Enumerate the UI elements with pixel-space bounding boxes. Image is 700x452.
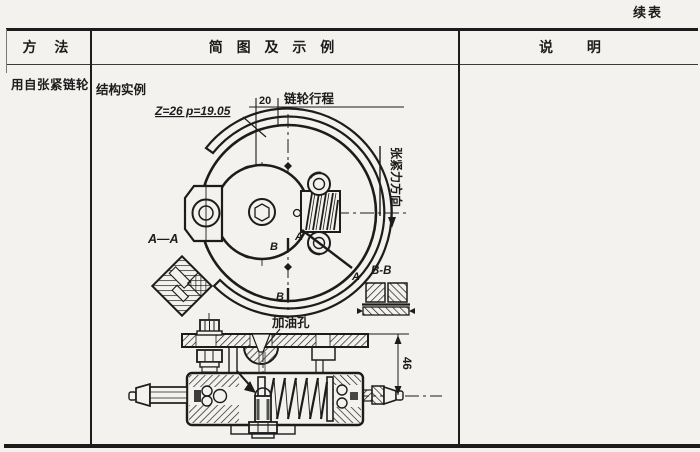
section-aa-title: A—A <box>147 232 179 246</box>
mounting-plate <box>182 334 368 347</box>
dim20-value: 20 <box>259 95 271 107</box>
section-a-a-view: A—A <box>147 232 212 316</box>
tension-direction-label: 张紧力方向 <box>389 147 404 207</box>
example-label: 结构实例 <box>96 82 146 97</box>
section-label-a2: A <box>351 271 360 283</box>
housing-right-block <box>333 375 361 423</box>
stroke-label: 链轮行程 <box>284 91 335 106</box>
oil-hole-label: 加油孔 <box>271 315 310 330</box>
section-bb-title: B-B <box>371 265 391 277</box>
plate-bolt-top-right <box>308 173 330 195</box>
scanned-handbook-page: 续表 方 法 简 图 及 示 例 说 明 用自张紧链轮 结构实例 Z=26 p=… <box>0 0 700 452</box>
schematic-drawing: 结构实例 Z=26 p=19.05 20 链轮行程 <box>0 0 700 452</box>
tension-arrow-head <box>388 217 396 228</box>
section-label-b2: B <box>276 291 284 303</box>
center-mark-top <box>284 162 292 170</box>
section-b-b-view: B-B <box>357 265 415 315</box>
section-label-b1: B <box>270 241 278 253</box>
section-label-a1: A <box>294 231 303 243</box>
sprocket-spec-label: Z=26 p=19.05 <box>154 104 231 118</box>
housing-left-block <box>189 375 239 423</box>
left-adjuster-bolt <box>129 384 187 406</box>
bottom-section-view: 加油孔 <box>129 313 442 441</box>
dim46-value: 46 <box>400 357 412 370</box>
hub-circle <box>215 165 309 259</box>
center-mark-bottom <box>284 263 292 271</box>
spring-pocket <box>301 191 340 232</box>
mounting-bracket <box>185 179 222 248</box>
